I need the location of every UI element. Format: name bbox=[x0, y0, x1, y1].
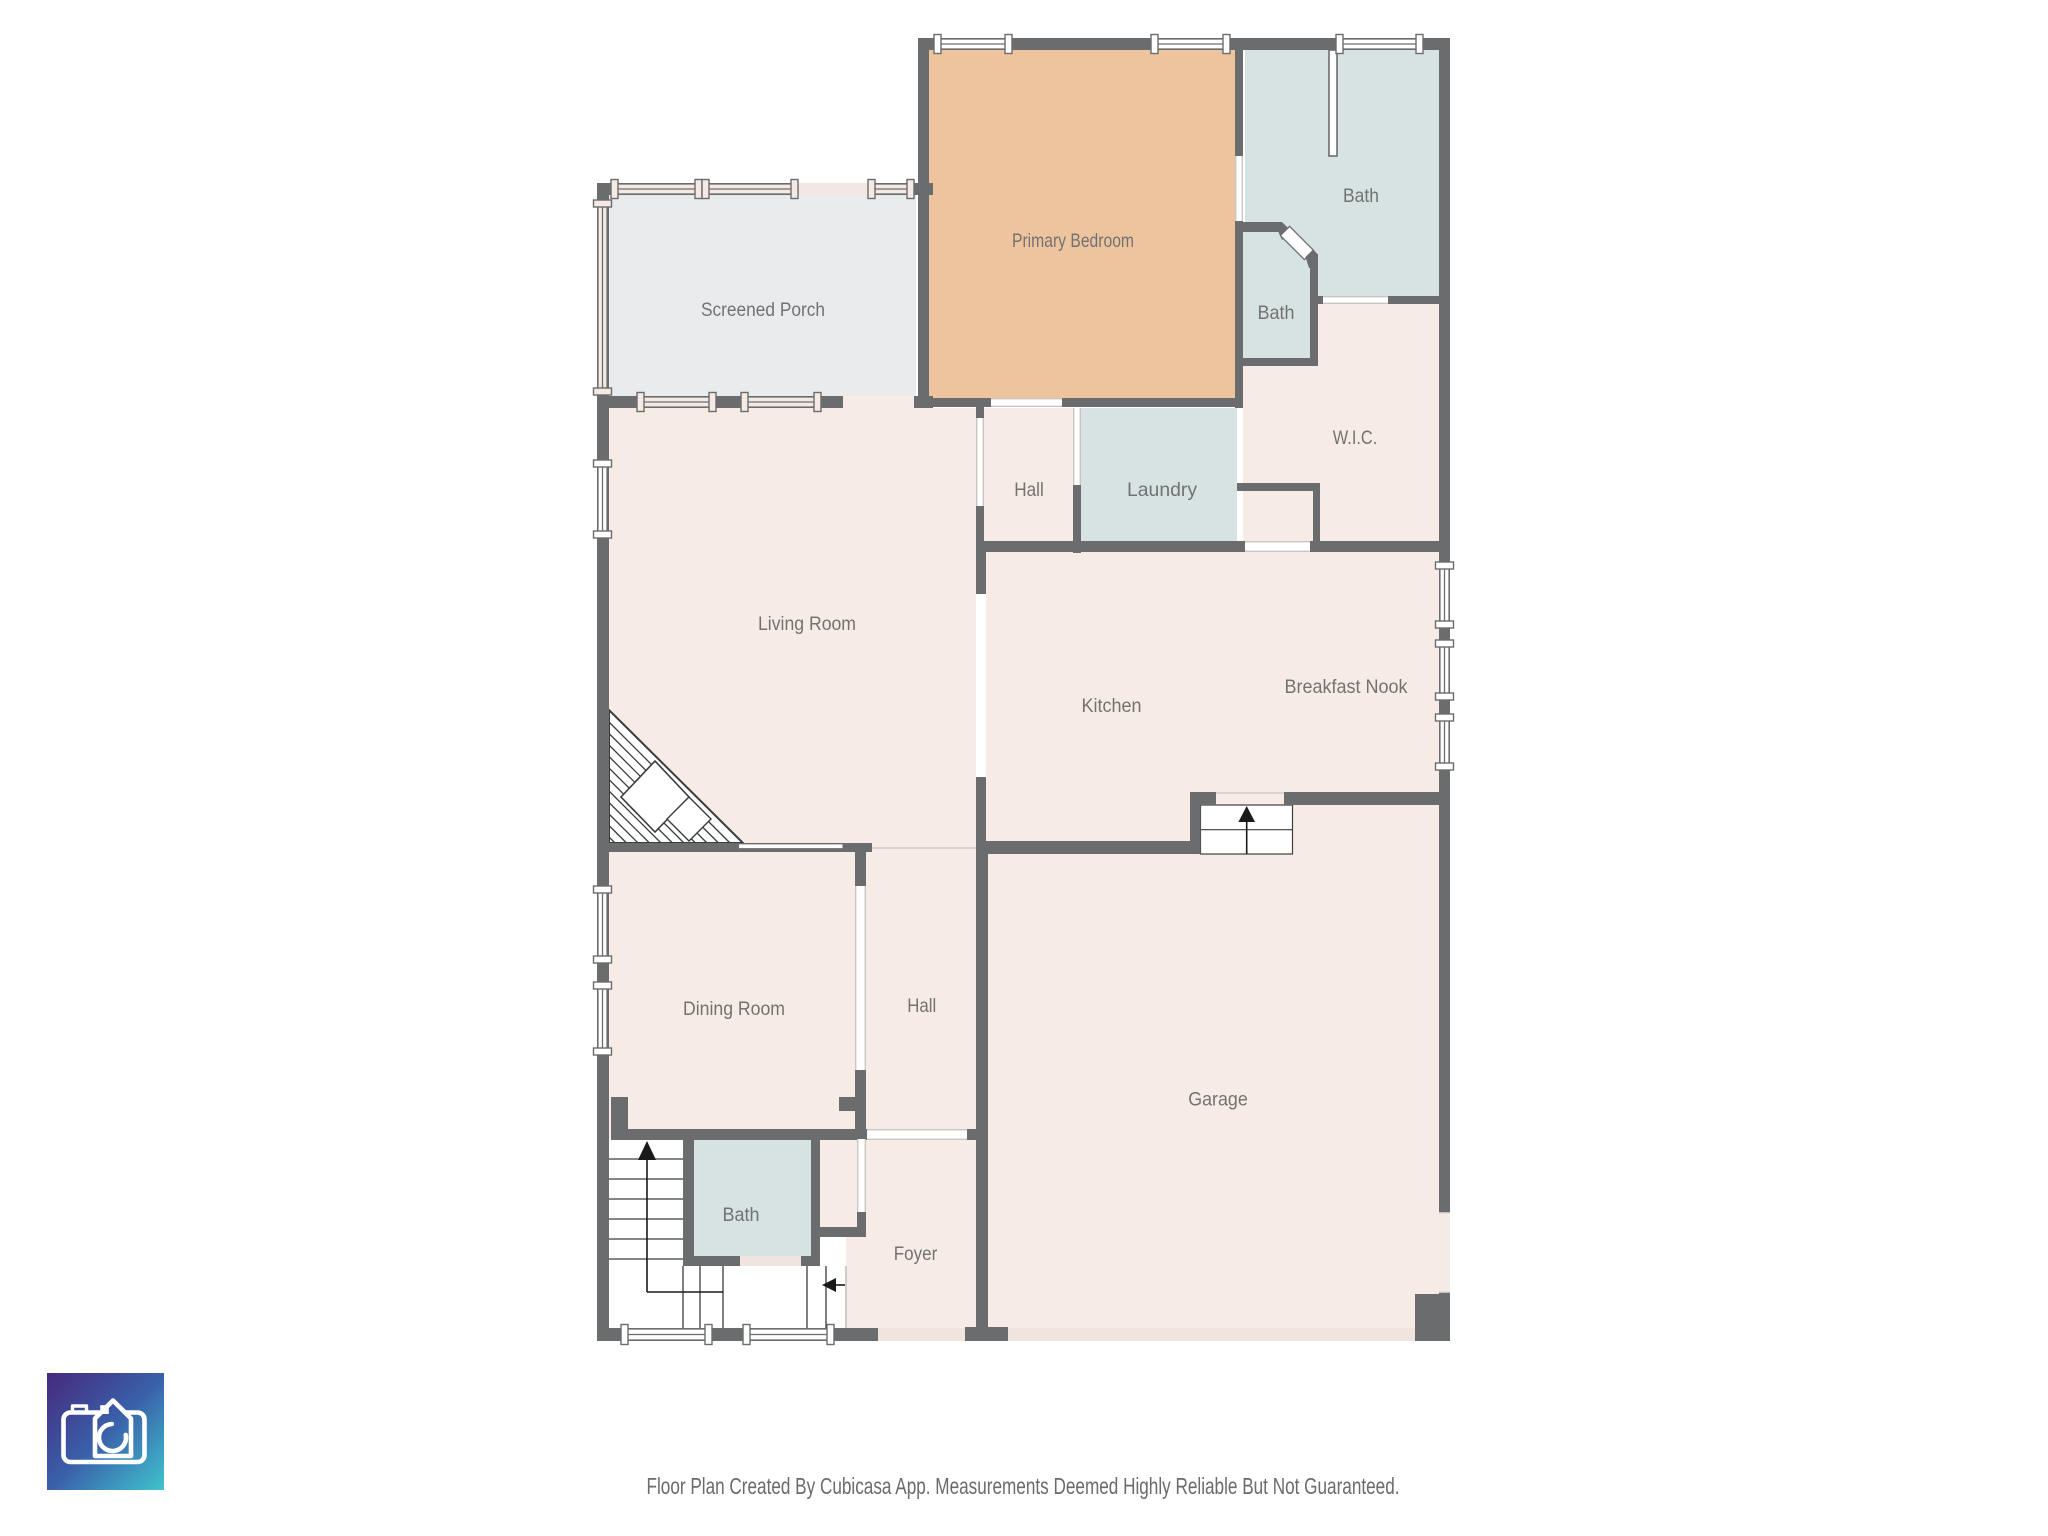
svg-text:W.I.C.: W.I.C. bbox=[1333, 427, 1378, 449]
svg-text:Kitchen: Kitchen bbox=[1082, 695, 1142, 717]
svg-text:Laundry: Laundry bbox=[1127, 479, 1197, 501]
svg-text:Bath: Bath bbox=[723, 1204, 760, 1226]
svg-text:Breakfast Nook: Breakfast Nook bbox=[1285, 676, 1408, 698]
svg-text:Primary Bedroom: Primary Bedroom bbox=[1012, 230, 1134, 252]
svg-text:Foyer: Foyer bbox=[894, 1243, 938, 1265]
svg-text:Hall: Hall bbox=[907, 995, 936, 1017]
svg-text:Bath: Bath bbox=[1258, 302, 1295, 324]
svg-text:Hall: Hall bbox=[1014, 479, 1044, 501]
svg-text:Floor Plan Created By Cubicasa: Floor Plan Created By Cubicasa App. Meas… bbox=[647, 1473, 1400, 1499]
svg-text:Screened Porch: Screened Porch bbox=[701, 299, 825, 321]
svg-text:Living Room: Living Room bbox=[758, 613, 856, 635]
svg-text:Garage: Garage bbox=[1188, 1089, 1248, 1111]
svg-text:Dining Room: Dining Room bbox=[683, 998, 785, 1020]
svg-text:Bath: Bath bbox=[1343, 185, 1379, 207]
